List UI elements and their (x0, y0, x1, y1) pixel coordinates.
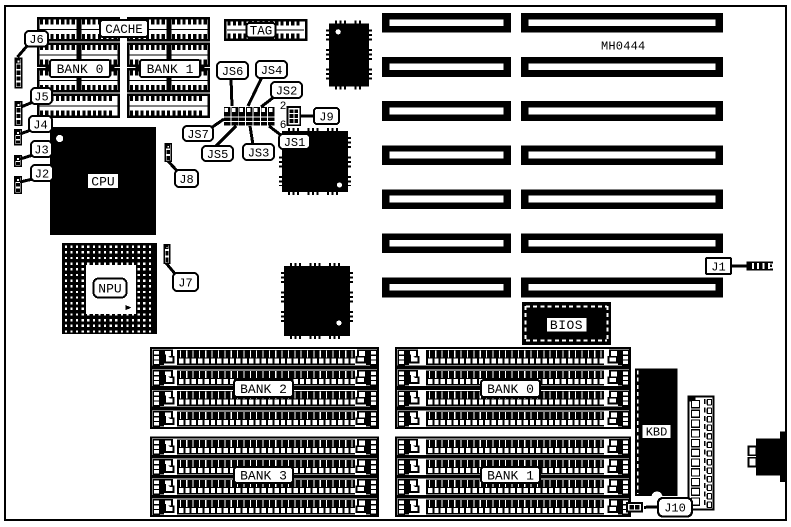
svg-text:J4: J4 (33, 118, 47, 132)
svg-text:J5: J5 (34, 90, 48, 104)
svg-text:JS4: JS4 (261, 64, 283, 78)
svg-text:JS5: JS5 (207, 148, 229, 162)
svg-text:JS6: JS6 (222, 65, 244, 79)
svg-text:TAG: TAG (250, 25, 273, 39)
svg-text:JS2: JS2 (276, 84, 298, 98)
svg-text:CACHE: CACHE (105, 23, 143, 37)
svg-text:J1: J1 (711, 260, 725, 274)
svg-text:2: 2 (280, 101, 287, 113)
svg-text:BANK 3: BANK 3 (240, 468, 287, 483)
svg-text:BANK 0: BANK 0 (487, 382, 534, 397)
svg-text:JS1: JS1 (284, 136, 306, 150)
svg-text:BANK 1: BANK 1 (487, 468, 534, 483)
svg-text:JS7: JS7 (187, 128, 209, 142)
svg-text:CPU: CPU (91, 175, 114, 190)
svg-text:BANK 1: BANK 1 (147, 62, 194, 77)
svg-text:J10: J10 (664, 502, 686, 516)
svg-text:MH0444: MH0444 (601, 40, 645, 54)
svg-text:J7: J7 (178, 276, 192, 290)
svg-text:JS3: JS3 (248, 146, 270, 160)
svg-text:BIOS: BIOS (550, 318, 583, 333)
svg-text:BANK 2: BANK 2 (240, 382, 287, 397)
svg-text:J3: J3 (34, 143, 48, 157)
svg-text:J6: J6 (29, 33, 43, 47)
svg-text:BANK 0: BANK 0 (57, 62, 104, 77)
svg-text:J8: J8 (179, 173, 193, 187)
svg-text:6: 6 (280, 120, 287, 132)
svg-text:J9: J9 (319, 110, 333, 124)
svg-text:J2: J2 (35, 167, 49, 181)
svg-text:NPU: NPU (98, 282, 121, 297)
svg-text:KBD: KBD (646, 426, 668, 440)
